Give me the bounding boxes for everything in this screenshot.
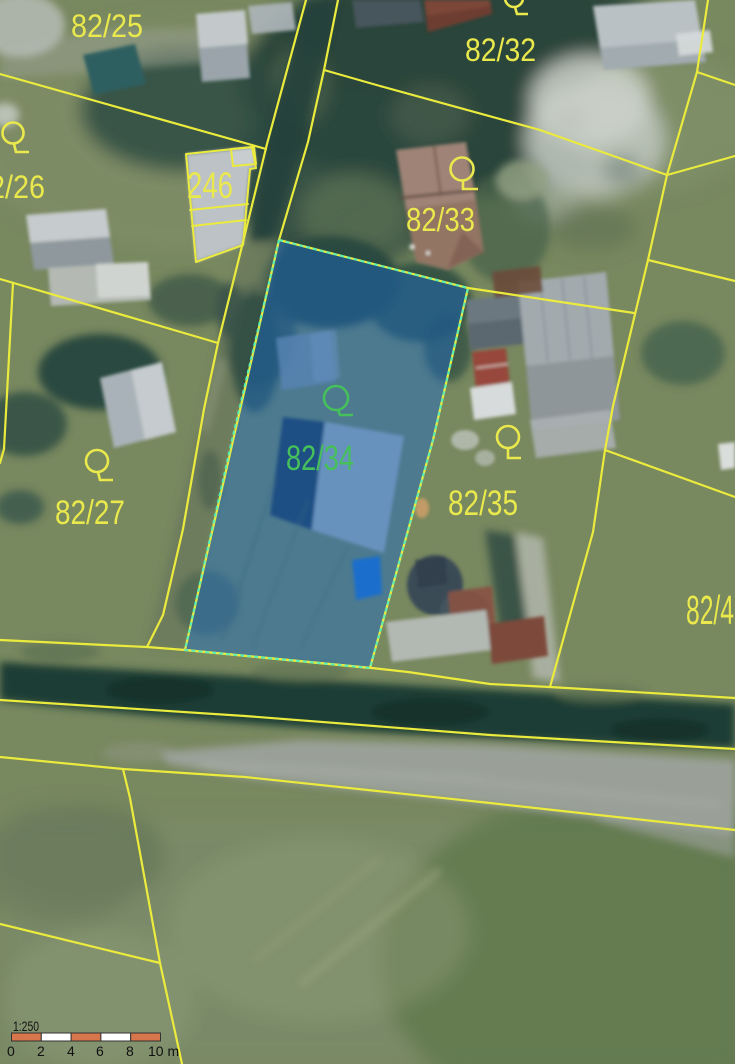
svg-text:82/32: 82/32 (465, 32, 536, 68)
svg-text:82/33: 82/33 (406, 201, 475, 238)
svg-text:82/26: 82/26 (0, 169, 45, 205)
svg-text:4: 4 (67, 1043, 75, 1059)
svg-text:0: 0 (7, 1043, 15, 1059)
svg-text:82/4: 82/4 (686, 587, 734, 633)
svg-text:8: 8 (126, 1043, 134, 1059)
svg-text:1:250: 1:250 (13, 1018, 39, 1034)
svg-text:6: 6 (96, 1043, 104, 1059)
svg-text:82/27: 82/27 (55, 494, 125, 532)
svg-text:82/34: 82/34 (286, 439, 354, 478)
svg-text:82/35: 82/35 (448, 484, 518, 523)
svg-text:2: 2 (37, 1043, 45, 1059)
svg-text:82/25: 82/25 (71, 8, 143, 44)
svg-text:246: 246 (187, 165, 233, 206)
svg-text:10 m: 10 m (148, 1043, 179, 1059)
